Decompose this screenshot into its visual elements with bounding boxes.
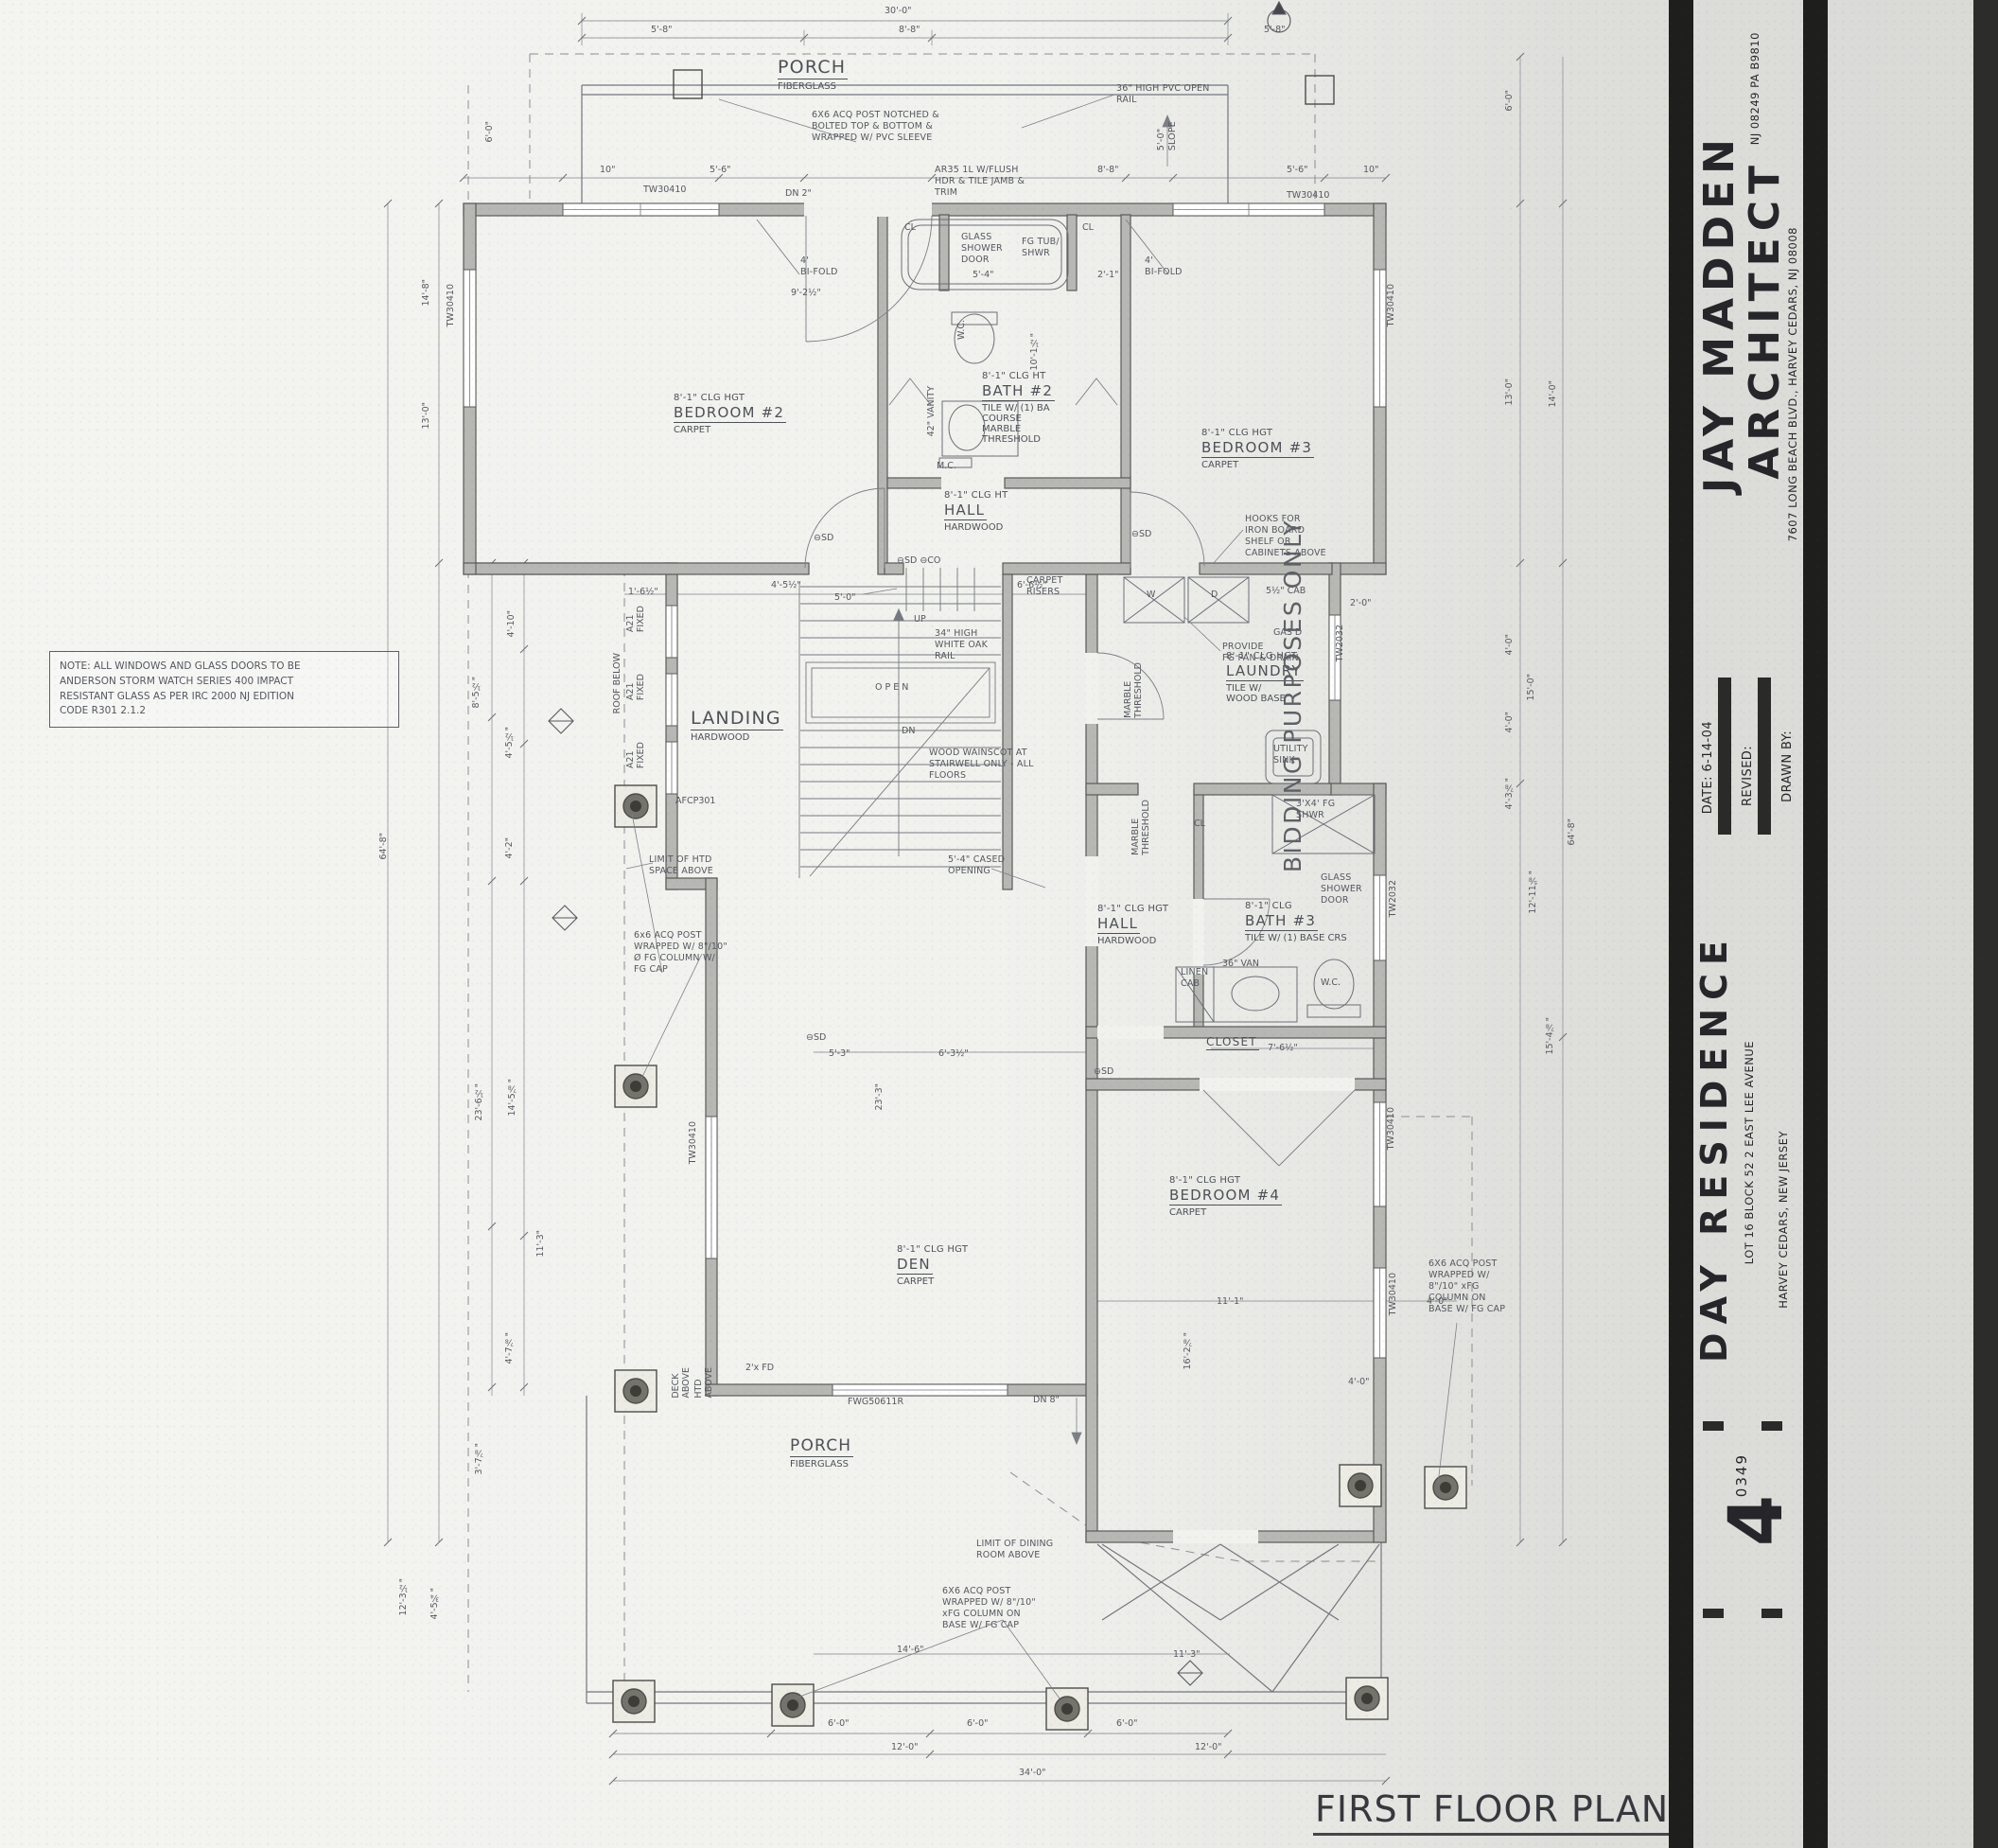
dimension-label: 6'-0" bbox=[828, 1718, 850, 1729]
room-name: HALL bbox=[944, 502, 987, 520]
ceiling-height-label: 8'-1" CLG HGT bbox=[1169, 1175, 1282, 1186]
dimension-label: 14'-0" bbox=[1548, 380, 1558, 408]
room-name: PORCH bbox=[790, 1436, 853, 1457]
dimension-label: 8'-8" bbox=[1097, 165, 1119, 175]
dimension-label: 4'-10" bbox=[506, 610, 517, 638]
medicine-cabinet-label: M.C. bbox=[937, 462, 956, 472]
dimension-label: 12'-11⅝" bbox=[1528, 871, 1538, 914]
floor-finish-label: FIBERGLASS bbox=[778, 81, 848, 92]
room-label-bedroom-4: 8'-1" CLG HGT BEDROOM #4 CARPET bbox=[1169, 1175, 1282, 1218]
job-number: 0349 bbox=[1733, 1453, 1750, 1497]
dimension-label: 4'-3⅞" bbox=[1504, 778, 1515, 810]
ceiling-height-label: 8'-1" CLG HT bbox=[944, 490, 1008, 501]
dimension-label: 5'-8" bbox=[1264, 25, 1286, 35]
room-label-landing: LANDING HARDWOOD bbox=[691, 708, 783, 743]
bidding-stamp: BIDDING PURPOSES ONLY bbox=[1279, 519, 1306, 872]
dimension-label: 15'-4⅞" bbox=[1545, 1017, 1555, 1055]
sheet-box-dash bbox=[1761, 1421, 1782, 1431]
vanity-label: 36" VAN bbox=[1222, 959, 1259, 970]
dimension-label: 23'-6½" bbox=[474, 1083, 484, 1121]
closet-label: CL bbox=[1194, 819, 1205, 830]
project-name: DAY RESIDENCE bbox=[1693, 932, 1735, 1363]
door-tag: FWG50611R bbox=[848, 1398, 903, 1408]
window-tag-fixed: A21 FIXED bbox=[626, 674, 647, 700]
smoke-detector-icon: ⊖SD bbox=[1094, 1067, 1113, 1078]
dimension-label: 4'-0" bbox=[1348, 1377, 1370, 1387]
window-tag: TW2032 bbox=[1336, 625, 1346, 661]
dimension-label: 9'-2½" bbox=[791, 288, 821, 298]
room-name: CLOSET bbox=[1206, 1035, 1259, 1050]
dimension-label: 5'-4" bbox=[973, 270, 994, 280]
dimension-label: 5'-8" bbox=[651, 25, 673, 35]
floor-drain-label: 2'x FD bbox=[745, 1364, 774, 1374]
room-label-porch-top: PORCH FIBERGLASS bbox=[778, 57, 848, 92]
dimension-label: 4'-2" bbox=[504, 837, 515, 859]
sheet-box-dash bbox=[1703, 1609, 1724, 1618]
dimension-label: 14'-6" bbox=[897, 1645, 924, 1655]
window-tag-fixed: A21 FIXED bbox=[626, 742, 647, 768]
dimension-label: 4'-0" bbox=[1504, 712, 1515, 733]
room-name: BEDROOM #4 bbox=[1169, 1187, 1282, 1206]
ceiling-height-label: 8'-1" CLG HGT bbox=[1201, 428, 1314, 438]
room-name: BATH #3 bbox=[1245, 912, 1318, 931]
callout-glass-shower-door-bath2: GLASS SHOWER DOOR bbox=[961, 232, 1003, 266]
window-tag: TW30410 bbox=[1287, 191, 1329, 202]
smoke-detector-icon: ⊖SD bbox=[806, 1033, 826, 1044]
dimension-label: 2'-0" bbox=[1350, 598, 1372, 608]
vanity-bath3 bbox=[1214, 967, 1297, 1022]
callout-glass-shower-door-bath3: GLASS SHOWER DOOR bbox=[1321, 872, 1362, 906]
walls bbox=[464, 203, 1386, 1542]
callout-header: AR35 1L W/FLUSH HDR & TILE JAMB & TRIM bbox=[935, 165, 1025, 199]
title-block-stripe-left bbox=[1669, 0, 1693, 1848]
deck-above-label: DECK ABOVE bbox=[672, 1367, 692, 1399]
room-label-bedroom-3: 8'-1" CLG HGT BEDROOM #3 CARPET bbox=[1201, 428, 1314, 470]
callout-pvc-rail: 36" HIGH PVC OPEN RAIL bbox=[1116, 83, 1210, 106]
dimension-label: 2'-1" bbox=[1097, 270, 1119, 280]
smoke-detector-icon: ⊖SD bbox=[1131, 530, 1151, 540]
revised-rule bbox=[1758, 678, 1771, 835]
dimension-label: 4'-0" bbox=[1427, 1296, 1448, 1307]
project-city: HARVEY CEDARS, NEW JERSEY bbox=[1777, 1131, 1790, 1309]
room-name: DEN bbox=[897, 1256, 933, 1275]
stair-dn-label: DN bbox=[902, 727, 915, 737]
architect-name-line2: ARCHITECT bbox=[1741, 159, 1789, 480]
window-tag: TW30410 bbox=[689, 1121, 699, 1164]
dimension-label: 13'-0" bbox=[1504, 378, 1515, 406]
floor-finish-label: HARDWOOD bbox=[1097, 936, 1168, 946]
dimension-label: 6'-0" bbox=[484, 121, 495, 143]
dryer-box bbox=[1188, 577, 1249, 623]
room-name: LANDING bbox=[691, 708, 783, 730]
project-address: LOT 16 BLOCK 52 2 EAST LEE AVENUE bbox=[1743, 1041, 1756, 1264]
ceiling-height-label: 8'-1" CLG HT bbox=[982, 371, 1055, 381]
callout-limit-htd-space: LIMIT OF HTD SPACE ABOVE bbox=[649, 854, 713, 877]
step-down-label: DN 8" bbox=[1033, 1396, 1060, 1406]
dimension-label: 6'-0" bbox=[967, 1718, 989, 1729]
room-label-den: 8'-1" CLG HGT DEN CARPET bbox=[897, 1244, 968, 1287]
stairwell-open-label: OPEN bbox=[875, 683, 911, 694]
porch-outlines bbox=[582, 85, 1381, 1703]
callout-linen-cab: LINEN CAB bbox=[1181, 967, 1208, 990]
dimension-label: 4'-5¾" bbox=[429, 1588, 440, 1620]
smoke-co-detector-icon: ⊖SD ⊖CO bbox=[897, 556, 940, 567]
dimension-label: 15'-0" bbox=[1526, 674, 1536, 701]
closet-label: CL bbox=[1082, 223, 1094, 234]
room-name: BATH #2 bbox=[982, 382, 1055, 401]
dimension-label: 30'-0" bbox=[885, 6, 912, 16]
floor-finish-label: CARPET bbox=[1169, 1207, 1282, 1218]
room-label-bath-3: 8'-1" CLG BATH #3 TILE W/ (1) BASE CRS bbox=[1245, 901, 1347, 943]
dimension-label: 12'-0" bbox=[891, 1742, 919, 1752]
dimension-label: 10" bbox=[600, 165, 615, 175]
callout-porch-post: 6X6 ACQ POST NOTCHED & BOLTED TOP & BOTT… bbox=[812, 110, 939, 144]
dimension-label: 5'-6" bbox=[710, 165, 731, 175]
section-markers bbox=[549, 2, 1290, 1685]
callout-fg-column-left: 6x6 ACQ POST WRAPPED W/ 8"/10" Ø FG COLU… bbox=[634, 930, 727, 976]
floor-finish-label: HARDWOOD bbox=[944, 522, 1008, 533]
dimension-label: 6'-6½" bbox=[1017, 580, 1047, 590]
floor-finish-label: FIBERGLASS bbox=[790, 1459, 853, 1470]
callout-fg-tub: FG TUB/ SHWR bbox=[1022, 237, 1060, 259]
post-tag: AFCP301 bbox=[675, 797, 715, 807]
revised-field: REVISED: bbox=[1741, 746, 1755, 806]
room-label-closet: CLOSET bbox=[1206, 1031, 1259, 1050]
dimension-label: 5'-6" bbox=[1287, 165, 1308, 175]
dimension-label: 10'-1½" bbox=[1029, 333, 1040, 371]
window-tag: TW30410 bbox=[447, 284, 457, 326]
dimension-label: 4'-7⅞" bbox=[504, 1332, 515, 1364]
floor-finish-label: CARPET bbox=[897, 1276, 968, 1287]
ceiling-height-label: 8'-1" CLG HGT bbox=[1097, 904, 1168, 914]
dimension-label: 6'-0" bbox=[1116, 1718, 1138, 1729]
dimension-label: 11'-3" bbox=[535, 1230, 546, 1258]
roof-below-label: ROOF BELOW bbox=[613, 653, 623, 713]
dimension-label: 11'-3" bbox=[1173, 1649, 1201, 1660]
dimension-label: 12'-0" bbox=[1195, 1742, 1222, 1752]
architect-name-line1: JAY MADDEN bbox=[1695, 132, 1744, 493]
architect-license: NJ 08249 PA B9810 bbox=[1748, 32, 1761, 145]
room-name: HALL bbox=[1097, 915, 1140, 934]
dimension-label: 3'-7⅞" bbox=[474, 1443, 484, 1475]
wc-label: W.C. bbox=[957, 320, 968, 340]
sheet-number: 4 bbox=[1714, 1495, 1799, 1546]
step-down-label: DN 2" bbox=[785, 189, 812, 200]
floor-finish-label: CARPET bbox=[1201, 460, 1314, 470]
dryer-label: D bbox=[1211, 590, 1218, 601]
callout-bifold-left: 4' BI-FOLD bbox=[800, 255, 838, 278]
dimension-label: 6'-0" bbox=[1504, 90, 1515, 112]
smoke-detector-icon: ⊖SD bbox=[814, 534, 833, 544]
window-tag: TW30410 bbox=[1387, 284, 1397, 326]
dimension-label: 16'-2⅞" bbox=[1183, 1332, 1193, 1370]
callout-bifold-right: 4' BI-FOLD bbox=[1145, 255, 1183, 278]
marble-threshold-label: MARBLE THRESHOLD bbox=[1131, 800, 1152, 855]
dimension-label: 64'-8" bbox=[378, 833, 389, 860]
sheet-box-dash bbox=[1761, 1609, 1782, 1618]
dimension-label: 10" bbox=[1363, 165, 1378, 175]
callout-cased-opening: 5'-4" CASED OPENING bbox=[948, 854, 1005, 877]
floor-finish-label: HARDWOOD bbox=[691, 732, 783, 743]
room-name: BEDROOM #2 bbox=[674, 404, 786, 423]
room-label-hall-2: 8'-1" CLG HGT HALL HARDWOOD bbox=[1097, 904, 1168, 946]
window-tag: TW30410 bbox=[1389, 1273, 1399, 1315]
title-block-stripe-right bbox=[1803, 0, 1828, 1848]
dimension-label: 4'-5½" bbox=[504, 727, 515, 759]
dimension-label: 14'-5⅞" bbox=[507, 1079, 517, 1117]
dimension-label: 5'-0" bbox=[834, 592, 856, 603]
room-label-bath-2: 8'-1" CLG HT BATH #2 TILE W/ (1) BA COUR… bbox=[982, 371, 1055, 445]
window-tag-fixed: A21 FIXED bbox=[626, 606, 647, 632]
dimension-label: 64'-8" bbox=[1567, 818, 1577, 846]
window-tag: TW2032 bbox=[1389, 880, 1399, 917]
room-label-porch-bottom: PORCH FIBERGLASS bbox=[790, 1436, 853, 1470]
window-tag: TW30410 bbox=[1387, 1107, 1397, 1150]
floor-finish-label: TILE W/ (1) BASE CRS bbox=[1245, 933, 1347, 943]
htd-above-label: HTD ABOVE bbox=[694, 1367, 715, 1399]
dimension-label: 8'-8" bbox=[899, 25, 920, 35]
stair-up-label: UP bbox=[914, 615, 926, 625]
floor-finish-label: TILE W/ (1) BA COURSE MARBLE THRESHOLD bbox=[982, 403, 1055, 445]
dimension-label: 1'-6½" bbox=[628, 587, 658, 597]
ceiling-height-label: 8'-1" CLG HGT bbox=[674, 393, 786, 403]
dimension-label: 14'-8" bbox=[421, 279, 431, 307]
vanity-label: 42" VANITY bbox=[927, 386, 938, 436]
dimension-label: 5'-3" bbox=[829, 1048, 850, 1059]
room-name: PORCH bbox=[778, 57, 848, 79]
dimension-label: 8'-5½" bbox=[471, 677, 482, 709]
room-label-bedroom-2: 8'-1" CLG HGT BEDROOM #2 CARPET bbox=[674, 393, 786, 435]
room-name: BEDROOM #3 bbox=[1201, 439, 1314, 458]
drawn-by-field: DRAWN BY: bbox=[1780, 730, 1795, 802]
washer-label: W bbox=[1147, 590, 1155, 601]
sheet-box-dash bbox=[1703, 1421, 1724, 1431]
callout-limit-dining: LIMIT OF DINING ROOM ABOVE bbox=[976, 1539, 1053, 1561]
callout-fg-column-bottom: 6X6 ACQ POST WRAPPED W/ 8"/10" xFG COLUM… bbox=[942, 1586, 1036, 1631]
architect-address: 7607 LONG BEACH BLVD., HARVEY CEDARS, NJ… bbox=[1786, 227, 1799, 541]
dimension-label: 34'-0" bbox=[1019, 1768, 1046, 1778]
plan-title: FIRST FLOOR PLAN bbox=[1313, 1788, 1684, 1836]
window-tag: TW30410 bbox=[643, 185, 686, 196]
room-label-hall-1: 8'-1" CLG HT HALL HARDWOOD bbox=[944, 490, 1008, 533]
dimension-label: 7'-6½" bbox=[1268, 1043, 1298, 1053]
dimension-label: 4'-5½" bbox=[771, 580, 801, 590]
callout-oak-rail: 34" HIGH WHITE OAK RAIL bbox=[935, 628, 988, 662]
general-note-box: NOTE: ALL WINDOWS AND GLASS DOORS TO BE … bbox=[49, 651, 399, 728]
date-rule bbox=[1718, 678, 1731, 835]
closet-label: CL bbox=[904, 223, 916, 234]
dimension-label: 6'-3½" bbox=[938, 1048, 969, 1059]
dimension-label: 11'-1" bbox=[1217, 1296, 1244, 1307]
sheet-edge-band bbox=[1973, 0, 1998, 1848]
date-field: DATE: 6-14-04 bbox=[1701, 721, 1715, 814]
stairs bbox=[799, 568, 1001, 878]
callout-slope: 5'-0" SLOPE bbox=[1156, 121, 1179, 150]
drawing-sheet: NOTE: ALL WINDOWS AND GLASS DOORS TO BE … bbox=[0, 0, 1998, 1848]
callout-wainscot: WOOD WAINSCOT AT STAIRWELL ONLY - ALL FL… bbox=[929, 748, 1034, 782]
dimension-label: 23'-3" bbox=[874, 1083, 885, 1111]
dimension-label: 13'-0" bbox=[421, 402, 431, 430]
wc-label: W.C. bbox=[1321, 978, 1341, 989]
floor-finish-label: CARPET bbox=[674, 425, 786, 435]
marble-threshold-label: MARBLE THRESHOLD bbox=[1124, 662, 1145, 718]
dimension-label: 12'-3½" bbox=[398, 1578, 409, 1616]
dimension-label: 4'-0" bbox=[1504, 634, 1515, 656]
ceiling-height-label: 8'-1" CLG HGT bbox=[897, 1244, 968, 1255]
